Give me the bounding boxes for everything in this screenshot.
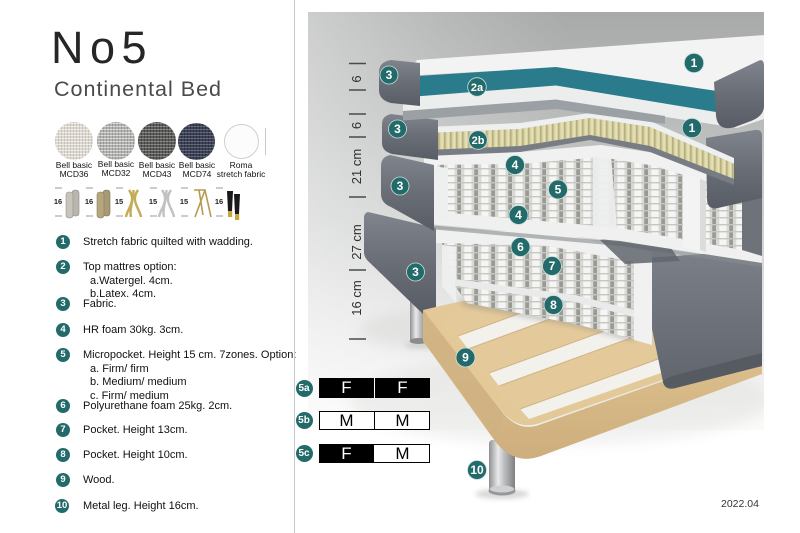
svg-text:5: 5 <box>555 183 562 197</box>
svg-text:4: 4 <box>515 208 522 222</box>
svg-text:2a: 2a <box>471 82 484 94</box>
svg-text:2022.04: 2022.04 <box>721 498 759 510</box>
svg-text:2b: 2b <box>472 135 485 147</box>
svg-text:10: 10 <box>470 463 484 477</box>
svg-text:1: 1 <box>691 56 698 70</box>
svg-text:21 cm: 21 cm <box>349 149 364 184</box>
svg-text:3: 3 <box>386 68 393 82</box>
svg-text:6: 6 <box>517 240 524 254</box>
svg-text:27 cm: 27 cm <box>349 224 364 259</box>
svg-text:3: 3 <box>412 265 419 279</box>
svg-text:3: 3 <box>397 179 404 193</box>
svg-text:4: 4 <box>512 158 519 172</box>
svg-text:1: 1 <box>689 121 696 135</box>
svg-text:8: 8 <box>550 298 557 312</box>
svg-text:6: 6 <box>349 75 364 82</box>
svg-text:7: 7 <box>549 259 556 273</box>
svg-text:6: 6 <box>349 122 364 129</box>
svg-text:9: 9 <box>462 351 469 365</box>
svg-text:3: 3 <box>394 122 401 136</box>
svg-text:16 cm: 16 cm <box>349 280 364 315</box>
